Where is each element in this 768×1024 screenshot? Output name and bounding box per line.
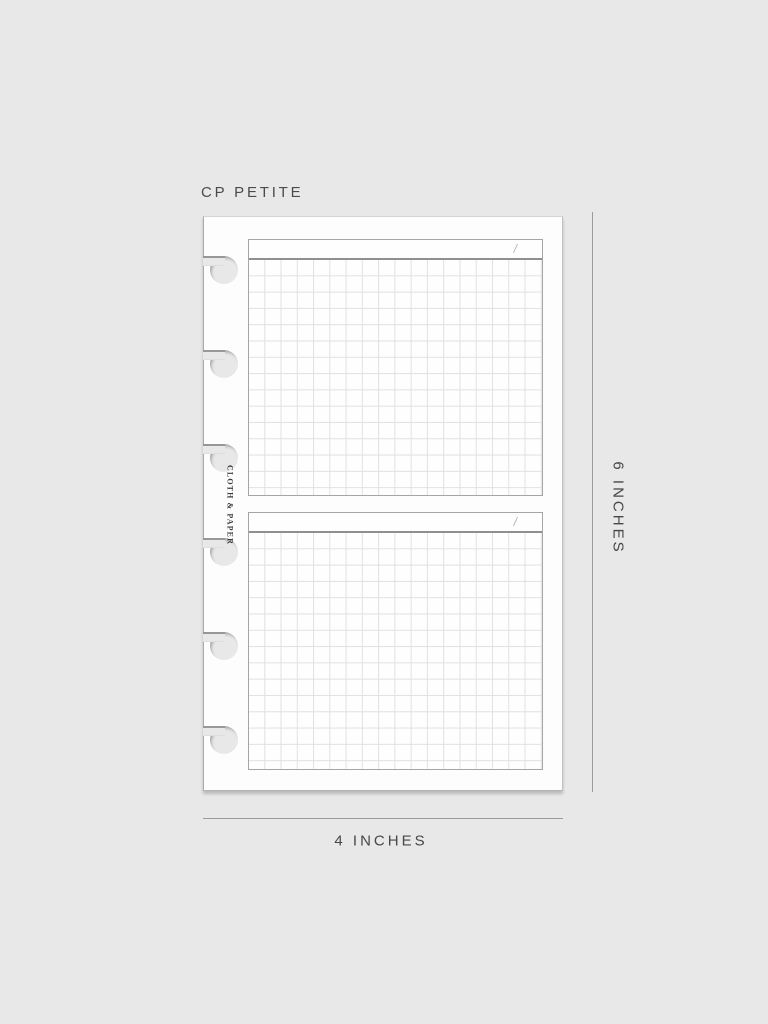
hole-slot: [203, 444, 225, 454]
hole-slot: [203, 632, 225, 642]
grid-section-bottom: /: [248, 512, 543, 770]
disc-punch-hole: [203, 256, 240, 285]
disc-punch-hole: [203, 350, 240, 379]
width-dimension-label: 4 INCHES: [334, 833, 427, 850]
grid-section-header: /: [249, 240, 542, 260]
hole-slot: [203, 726, 225, 736]
planner-insert-page: CLOTH & PAPER / /: [203, 216, 563, 791]
product-variant-label: CP PETITE: [201, 184, 303, 201]
date-slash-mark: /: [514, 515, 517, 529]
grid-section-top: /: [248, 239, 543, 496]
disc-punch-hole: [203, 726, 240, 755]
grid-area: [249, 260, 542, 495]
height-dimension-label: 6 INCHES: [610, 461, 627, 554]
height-dimension-line: [592, 212, 593, 792]
disc-punch-hole: [203, 632, 240, 661]
date-slash-mark: /: [514, 242, 517, 256]
hole-slot: [203, 538, 225, 548]
hole-slot: [203, 256, 225, 266]
brand-vertical-text: CLOTH & PAPER: [226, 465, 235, 545]
hole-slot: [203, 350, 225, 360]
width-dimension-line: [203, 818, 563, 819]
grid-area: [249, 533, 542, 769]
product-dimension-mockup: CP PETITE CLOTH & PAPER / / 6 INCHES 4 I…: [0, 0, 768, 1024]
grid-section-header: /: [249, 513, 542, 533]
